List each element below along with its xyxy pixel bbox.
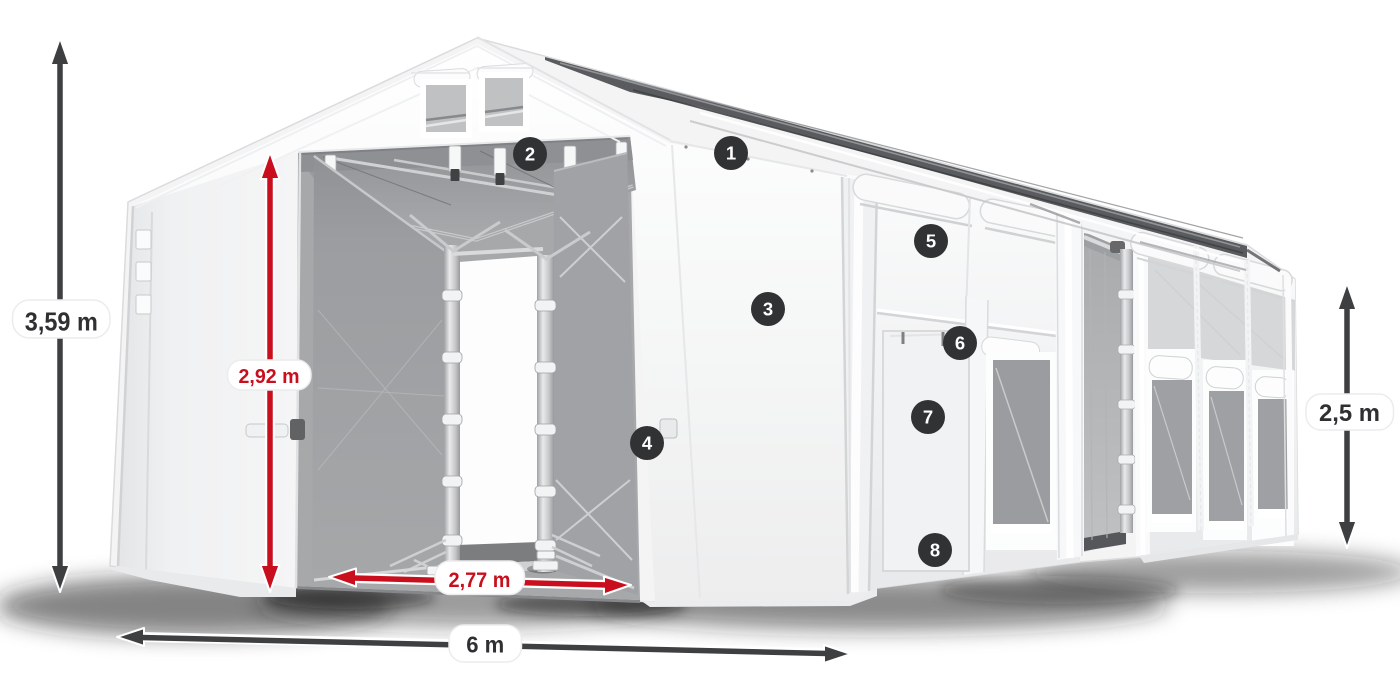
svg-text:8: 8 bbox=[930, 540, 940, 561]
svg-text:6: 6 bbox=[955, 333, 965, 354]
svg-text:3,59 m: 3,59 m bbox=[25, 307, 98, 337]
svg-text:1: 1 bbox=[726, 143, 736, 164]
svg-text:2,5 m: 2,5 m bbox=[1319, 400, 1380, 427]
svg-text:5: 5 bbox=[926, 231, 936, 252]
svg-text:6 m: 6 m bbox=[466, 631, 504, 657]
svg-text:2: 2 bbox=[525, 144, 535, 165]
svg-text:7: 7 bbox=[923, 407, 933, 428]
svg-text:2,77 m: 2,77 m bbox=[449, 569, 511, 592]
svg-text:3: 3 bbox=[763, 299, 773, 320]
svg-text:2,92 m: 2,92 m bbox=[239, 366, 300, 388]
svg-text:4: 4 bbox=[642, 433, 653, 454]
